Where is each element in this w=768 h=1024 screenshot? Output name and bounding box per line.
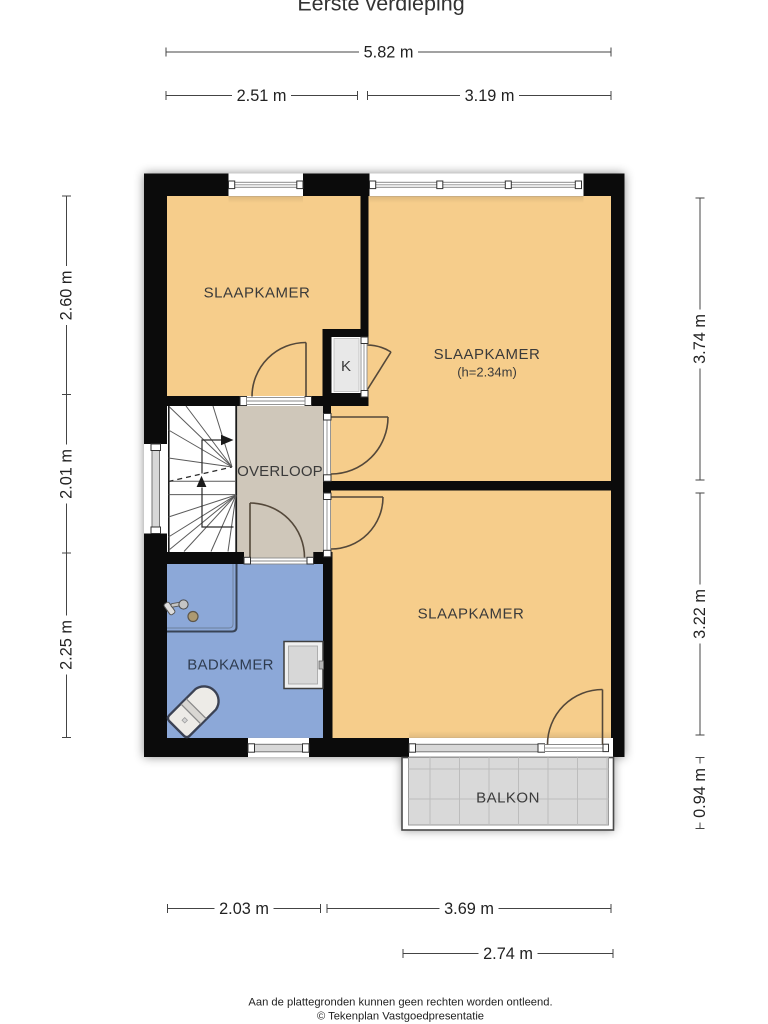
svg-text:SLAAPKAMER: SLAAPKAMER — [204, 285, 311, 302]
svg-text:BADKAMER: BADKAMER — [187, 657, 274, 674]
svg-text:0.94 m: 0.94 m — [691, 768, 709, 818]
svg-text:2.01 m: 2.01 m — [58, 449, 76, 499]
svg-text:BALKON: BALKON — [476, 790, 540, 807]
svg-text:OVERLOOP: OVERLOOP — [237, 463, 323, 480]
svg-text:K: K — [341, 358, 351, 375]
svg-text:SLAAPKAMER: SLAAPKAMER — [434, 346, 541, 363]
svg-text:5.82 m: 5.82 m — [364, 44, 414, 62]
svg-text:3.69 m: 3.69 m — [444, 900, 494, 918]
svg-text:2.03 m: 2.03 m — [219, 900, 269, 918]
svg-text:Aan de plattegronden kunnen ge: Aan de plattegronden kunnen geen rechten… — [248, 997, 552, 1009]
svg-text:2.25 m: 2.25 m — [58, 620, 76, 670]
svg-text:2.60 m: 2.60 m — [58, 271, 76, 321]
svg-text:© Tekenplan Vastgoedpresentati: © Tekenplan Vastgoedpresentatie — [317, 1011, 484, 1023]
svg-text:3.19 m: 3.19 m — [465, 87, 515, 105]
svg-text:3.22 m: 3.22 m — [691, 589, 709, 639]
svg-text:SLAAPKAMER: SLAAPKAMER — [418, 606, 525, 623]
svg-text:3.74 m: 3.74 m — [691, 314, 709, 364]
svg-text:Eerste verdieping: Eerste verdieping — [297, 0, 464, 16]
svg-text:(h=2.34m): (h=2.34m) — [457, 365, 517, 380]
svg-text:2.51 m: 2.51 m — [237, 87, 287, 105]
svg-text:2.74 m: 2.74 m — [483, 945, 533, 963]
